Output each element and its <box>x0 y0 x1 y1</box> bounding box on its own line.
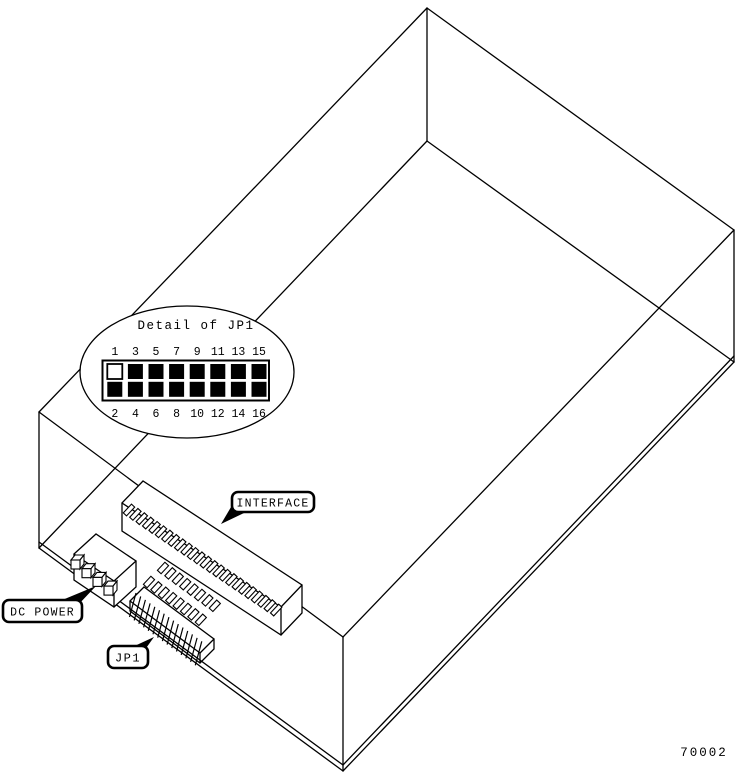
jumper-pin-closed <box>169 382 184 397</box>
callout-jp1: JP1 <box>108 637 154 668</box>
callout-dc-power: DC POWER <box>3 586 96 622</box>
interface-label: INTERFACE <box>237 498 310 511</box>
jp1-pin <box>143 576 154 587</box>
bottom-front-right-edge <box>343 362 734 771</box>
jumper-pin-closed <box>210 382 225 397</box>
jp1-pin <box>165 568 176 579</box>
jumper-pin-closed <box>128 364 143 379</box>
pin-number-top: 7 <box>173 346 180 359</box>
pin-number-bottom: 2 <box>111 408 118 421</box>
jp1-pin <box>187 584 198 595</box>
pin-number-top: 5 <box>153 346 160 359</box>
dc-power-label: DC POWER <box>10 607 75 620</box>
dc-pin-opening <box>93 577 102 586</box>
jp1-pin <box>195 614 206 625</box>
jumper-pin-closed <box>210 364 225 379</box>
pin-number-bottom: 10 <box>190 408 204 421</box>
dc-pin-opening <box>104 586 113 595</box>
jp1-label: JP1 <box>115 652 141 666</box>
jp1-pin <box>202 595 213 606</box>
jp1-pin <box>151 582 162 593</box>
pin-number-top: 1 <box>111 346 118 359</box>
front-right-top-edge <box>343 230 734 637</box>
bottom-rear-right-edge <box>427 141 734 362</box>
dc-pin-opening <box>82 569 91 578</box>
jp1-pin <box>180 578 191 589</box>
jumper-pin-closed <box>128 382 143 397</box>
jp1-pin <box>166 592 177 603</box>
pin-number-top: 15 <box>252 346 266 359</box>
jumper-pin-open <box>107 364 122 379</box>
jp1-pin <box>188 609 199 620</box>
detail-title: Detail of JP1 <box>137 319 254 333</box>
pin-number-bottom: 8 <box>173 408 180 421</box>
jp1-pin <box>172 573 183 584</box>
jumper-pin-closed <box>252 364 267 379</box>
pin-number-bottom: 4 <box>132 408 139 421</box>
jumper-pin-closed <box>149 364 164 379</box>
jp1-pin <box>180 603 191 614</box>
jumper-pin-closed <box>169 364 184 379</box>
callout-interface: INTERFACE <box>221 492 314 524</box>
jumper-pin-closed <box>149 382 164 397</box>
jumper-pin-closed <box>190 364 205 379</box>
jumper-pin-closed <box>231 364 246 379</box>
jp1-pin <box>209 600 220 611</box>
jp1-pin <box>157 562 168 573</box>
pin-number-bottom: 14 <box>231 408 245 421</box>
jp1-pin <box>194 589 205 600</box>
technical-figure: Detail of JP1 13579111315246810121416 DC… <box>0 0 736 776</box>
base-seam-right <box>343 356 734 765</box>
figure-number: 70002 <box>680 746 728 760</box>
jumper-pin-closed <box>107 382 122 397</box>
dc-pin-opening <box>71 560 80 569</box>
pin-number-top: 3 <box>132 346 139 359</box>
top-right-edge <box>427 8 734 230</box>
jp1-pin <box>158 587 169 598</box>
jp1-pin <box>173 598 184 609</box>
pin-number-top: 11 <box>211 346 225 359</box>
jumper-pin-closed <box>190 382 205 397</box>
jumper-pin-closed <box>252 382 267 397</box>
pin-number-top: 13 <box>231 346 245 359</box>
pin-number-top: 9 <box>194 346 201 359</box>
pin-number-bottom: 16 <box>252 408 266 421</box>
pin-number-bottom: 6 <box>153 408 160 421</box>
pin-number-bottom: 12 <box>211 408 225 421</box>
jumper-pin-closed <box>231 382 246 397</box>
jp1-detail-callout: Detail of JP1 13579111315246810121416 <box>80 306 294 438</box>
